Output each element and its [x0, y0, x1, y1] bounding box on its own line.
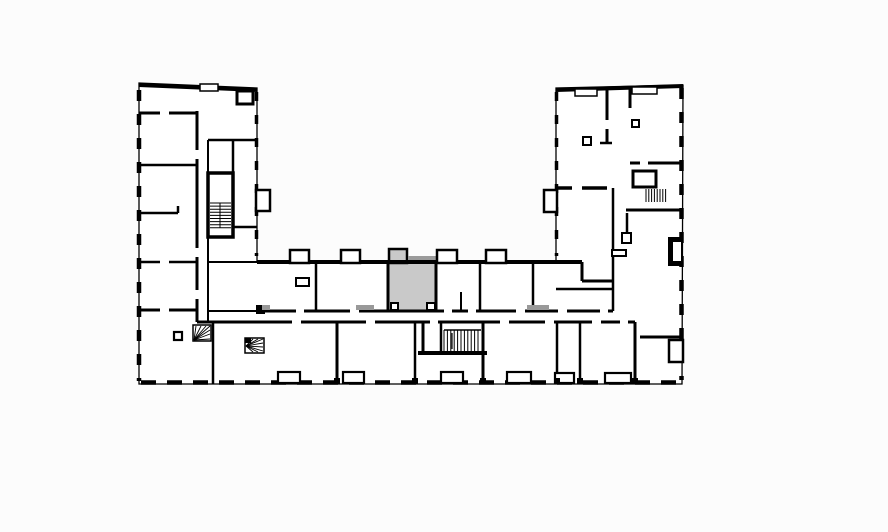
door-opening: [558, 308, 567, 314]
door-opening: [296, 308, 304, 314]
window-notch: [200, 84, 218, 91]
balcony: [441, 372, 463, 383]
fixture: [296, 278, 309, 286]
door-opening: [640, 160, 648, 166]
shaft-top-left: [237, 91, 253, 104]
door-opening: [516, 308, 525, 314]
window-notch: [632, 87, 657, 94]
wall-post: [577, 378, 583, 384]
door-opening: [430, 319, 438, 325]
door-opening: [366, 319, 375, 325]
door-opening: [620, 319, 628, 325]
door-opening: [604, 120, 610, 129]
balcony: [486, 250, 506, 263]
wall-post: [632, 378, 638, 384]
floor-plan-page: [0, 0, 888, 532]
door-opening: [444, 308, 452, 314]
balcony: [343, 372, 364, 383]
threshold: [356, 305, 374, 310]
door-opening: [194, 150, 200, 159]
balcony: [256, 190, 270, 211]
door-opening: [468, 308, 476, 314]
door-opening: [160, 259, 169, 265]
door-opening: [160, 110, 169, 116]
door-opening: [194, 290, 200, 299]
column: [583, 137, 591, 145]
shaft-inner: [672, 241, 682, 262]
fixture: [612, 250, 626, 256]
door-opening: [500, 319, 509, 325]
wall-post: [480, 378, 486, 384]
balcony: [278, 372, 300, 383]
wall-post: [412, 378, 418, 384]
door-opening: [600, 308, 608, 314]
balcony: [669, 340, 683, 362]
balcony: [544, 190, 557, 212]
door-opening: [572, 185, 582, 191]
fixture: [427, 303, 435, 310]
threshold: [262, 305, 270, 310]
door-opening: [194, 248, 200, 257]
balcony: [507, 372, 531, 383]
floor-plan: [0, 0, 888, 532]
balcony-slab: [408, 256, 436, 260]
threshold: [527, 305, 549, 310]
wall-post: [334, 378, 340, 384]
column: [174, 332, 182, 340]
elevator-right: [633, 171, 656, 187]
fixture: [622, 233, 631, 243]
balcony: [341, 250, 360, 263]
balcony: [290, 250, 309, 263]
balcony: [605, 373, 631, 383]
door-opening: [592, 319, 601, 325]
fixture: [391, 303, 398, 310]
window-notch: [575, 89, 597, 96]
door-opening: [292, 319, 301, 325]
column: [632, 120, 639, 127]
door-opening: [545, 319, 554, 325]
door-opening: [160, 307, 169, 313]
wall-post: [554, 378, 560, 384]
balcony: [437, 250, 457, 263]
